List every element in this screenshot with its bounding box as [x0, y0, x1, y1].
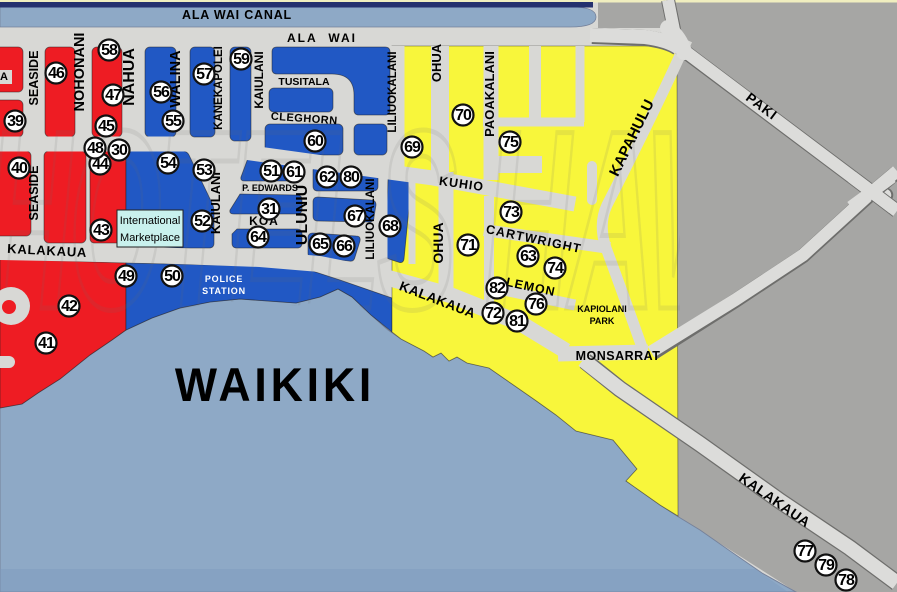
- svg-text:63: 63: [520, 248, 537, 265]
- svg-text:31: 31: [261, 201, 278, 218]
- svg-text:57: 57: [196, 66, 213, 83]
- svg-text:ALA WAI CANAL: ALA WAI CANAL: [182, 8, 292, 22]
- svg-text:OHUA: OHUA: [429, 43, 444, 82]
- svg-text:47: 47: [105, 87, 122, 104]
- svg-text:STATION: STATION: [202, 286, 246, 296]
- svg-text:67: 67: [347, 208, 364, 225]
- svg-text:48: 48: [87, 140, 104, 157]
- svg-text:76: 76: [528, 296, 545, 313]
- svg-text:75: 75: [502, 134, 519, 151]
- svg-text:72: 72: [485, 305, 502, 322]
- svg-text:56: 56: [153, 84, 170, 101]
- svg-text:82: 82: [489, 280, 506, 297]
- svg-text:73: 73: [503, 204, 520, 221]
- svg-text:SEASIDE: SEASIDE: [27, 166, 41, 221]
- svg-text:A: A: [0, 71, 8, 83]
- svg-text:41: 41: [38, 335, 55, 352]
- svg-text:MONSARRAT: MONSARRAT: [576, 349, 661, 363]
- svg-text:77: 77: [797, 543, 814, 560]
- svg-text:52: 52: [194, 213, 211, 230]
- svg-text:ULUNIU: ULUNIU: [294, 185, 311, 245]
- svg-text:53: 53: [196, 162, 213, 179]
- svg-text:60: 60: [307, 133, 324, 150]
- svg-text:66: 66: [336, 238, 353, 255]
- svg-text:SEASIDE: SEASIDE: [27, 51, 41, 106]
- svg-text:62: 62: [319, 169, 336, 186]
- svg-text:ALA WAI: ALA WAI: [287, 31, 357, 45]
- svg-text:LILIUOKALANI: LILIUOKALANI: [387, 51, 399, 132]
- svg-text:42: 42: [61, 298, 78, 315]
- svg-text:WAIKIKI: WAIKIKI: [175, 359, 375, 411]
- svg-text:71: 71: [460, 237, 477, 254]
- svg-text:46: 46: [48, 65, 65, 82]
- svg-text:54: 54: [160, 155, 177, 172]
- svg-text:65: 65: [312, 236, 329, 253]
- svg-text:PARK: PARK: [590, 316, 615, 326]
- svg-text:39: 39: [7, 113, 24, 130]
- svg-text:74: 74: [547, 260, 564, 277]
- svg-text:KAPIOLANI: KAPIOLANI: [577, 304, 627, 314]
- svg-text:Marketplace: Marketplace: [120, 232, 180, 244]
- svg-text:68: 68: [382, 218, 399, 235]
- svg-text:KAIULANI: KAIULANI: [252, 51, 266, 108]
- svg-text:80: 80: [343, 169, 360, 186]
- svg-text:40: 40: [11, 160, 28, 177]
- svg-text:69: 69: [404, 139, 421, 156]
- svg-text:61: 61: [286, 164, 303, 181]
- svg-text:P. EDWARDS: P. EDWARDS: [242, 183, 298, 193]
- svg-text:49: 49: [118, 268, 135, 285]
- svg-text:KANEKAPOLEI: KANEKAPOLEI: [213, 46, 225, 130]
- svg-text:OHUA: OHUA: [430, 222, 446, 263]
- svg-text:50: 50: [164, 268, 181, 285]
- svg-text:WALINA: WALINA: [168, 50, 184, 108]
- svg-text:78: 78: [838, 572, 855, 589]
- svg-text:43: 43: [93, 222, 110, 239]
- svg-text:55: 55: [165, 113, 182, 130]
- svg-text:POLICE: POLICE: [205, 274, 243, 284]
- svg-text:59: 59: [233, 51, 250, 68]
- svg-text:45: 45: [98, 118, 115, 135]
- svg-text:30: 30: [111, 142, 128, 159]
- svg-text:79: 79: [818, 557, 835, 574]
- svg-text:58: 58: [101, 42, 118, 59]
- svg-text:51: 51: [263, 163, 280, 180]
- svg-text:70: 70: [455, 107, 472, 124]
- svg-text:International: International: [120, 215, 181, 227]
- svg-text:81: 81: [509, 313, 526, 330]
- svg-text:64: 64: [250, 229, 267, 246]
- svg-text:LILIUOKALANI: LILIUOKALANI: [365, 178, 377, 259]
- svg-text:PAOAKALANI: PAOAKALANI: [482, 51, 497, 137]
- svg-text:NOHONANI: NOHONANI: [72, 33, 88, 112]
- svg-text:TUSITALA: TUSITALA: [278, 76, 330, 88]
